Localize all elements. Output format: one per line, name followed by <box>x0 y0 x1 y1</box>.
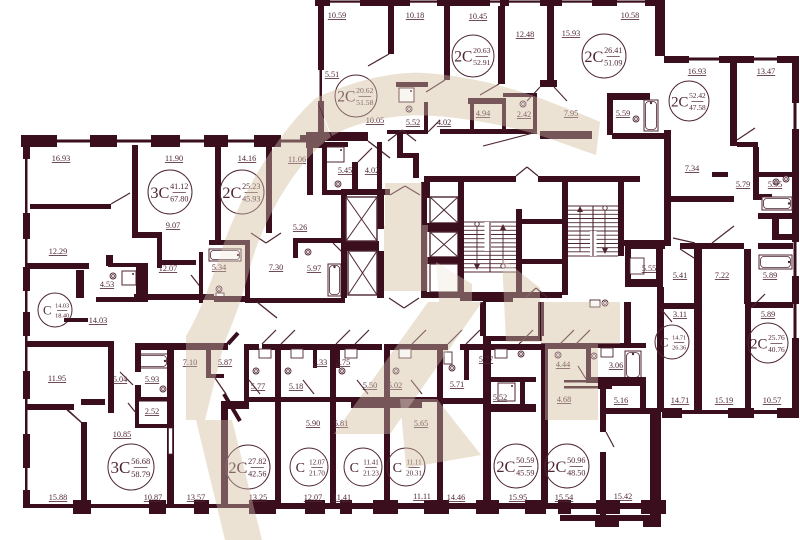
svg-text:2.75: 2.75 <box>336 358 350 367</box>
svg-text:11.41: 11.41 <box>333 493 351 502</box>
svg-text:10.59: 10.59 <box>328 11 346 20</box>
svg-text:10.45: 10.45 <box>469 12 487 21</box>
svg-text:42.56: 42.56 <box>248 470 266 479</box>
svg-text:7.30: 7.30 <box>269 263 283 272</box>
svg-text:48.50: 48.50 <box>567 469 585 478</box>
svg-text:5.71: 5.71 <box>450 380 464 389</box>
svg-text:50.96: 50.96 <box>567 456 585 465</box>
svg-text:45.59: 45.59 <box>516 469 534 478</box>
svg-text:10.58: 10.58 <box>621 11 639 20</box>
svg-text:11.11: 11.11 <box>413 492 431 501</box>
svg-text:21.70: 21.70 <box>309 469 325 477</box>
svg-text:4.02: 4.02 <box>365 166 379 175</box>
svg-text:15.93: 15.93 <box>562 29 580 38</box>
svg-text:4.02: 4.02 <box>437 118 451 127</box>
svg-text:56.68: 56.68 <box>131 456 150 466</box>
svg-text:11.90: 11.90 <box>165 154 183 163</box>
svg-text:15.95: 15.95 <box>509 493 527 502</box>
svg-text:5.52: 5.52 <box>406 118 420 127</box>
svg-text:5.45: 5.45 <box>338 166 352 175</box>
svg-text:52.42: 52.42 <box>689 91 706 100</box>
svg-text:15.42: 15.42 <box>614 492 632 501</box>
svg-text:2С: 2С <box>454 49 472 66</box>
svg-text:12.07: 12.07 <box>309 458 325 466</box>
svg-text:3С: 3С <box>150 183 169 202</box>
svg-text:14.71: 14.71 <box>672 335 686 342</box>
svg-text:С: С <box>393 460 402 476</box>
svg-text:12.29: 12.29 <box>49 247 67 256</box>
svg-text:51.09: 51.09 <box>604 59 622 68</box>
svg-text:14.46: 14.46 <box>447 493 465 502</box>
svg-text:52.91: 52.91 <box>473 58 491 67</box>
svg-text:2С: 2С <box>222 183 241 202</box>
svg-text:5.18: 5.18 <box>289 382 303 391</box>
svg-text:5.95: 5.95 <box>768 180 782 189</box>
svg-text:2С: 2С <box>584 47 603 66</box>
svg-text:5.77: 5.77 <box>251 382 265 391</box>
svg-text:2.33: 2.33 <box>313 358 327 367</box>
svg-text:41.12: 41.12 <box>170 182 188 191</box>
svg-text:10.18: 10.18 <box>406 11 424 20</box>
svg-text:С: С <box>296 460 305 476</box>
svg-text:9.07: 9.07 <box>166 221 180 230</box>
svg-text:7.34: 7.34 <box>685 164 699 173</box>
svg-text:5.16: 5.16 <box>614 396 628 405</box>
svg-text:21.23: 21.23 <box>363 469 379 477</box>
svg-text:5.89: 5.89 <box>763 271 777 280</box>
svg-text:14.16: 14.16 <box>238 154 256 163</box>
svg-text:5.55: 5.55 <box>642 264 656 273</box>
svg-text:26.41: 26.41 <box>604 46 622 55</box>
svg-text:2С: 2С <box>547 457 566 476</box>
svg-text:13.47: 13.47 <box>757 67 775 76</box>
svg-text:20.31: 20.31 <box>406 469 422 477</box>
svg-text:14.71: 14.71 <box>671 396 689 405</box>
svg-text:15.19: 15.19 <box>715 396 733 405</box>
svg-text:5.52: 5.52 <box>493 393 507 402</box>
svg-text:3С: 3С <box>110 458 130 477</box>
svg-text:16.93: 16.93 <box>52 154 70 163</box>
svg-text:12.48: 12.48 <box>516 30 534 39</box>
svg-text:5.77: 5.77 <box>479 355 493 364</box>
svg-text:20.63: 20.63 <box>473 46 491 55</box>
svg-text:40.76: 40.76 <box>768 345 785 354</box>
svg-text:5.26: 5.26 <box>293 223 307 232</box>
svg-text:11.95: 11.95 <box>48 374 66 383</box>
svg-text:10.87: 10.87 <box>144 493 162 502</box>
svg-text:10.57: 10.57 <box>763 396 781 405</box>
svg-text:14.03: 14.03 <box>55 303 69 310</box>
svg-text:2С: 2С <box>671 94 688 110</box>
svg-text:14.03: 14.03 <box>89 316 107 325</box>
svg-text:2С: 2С <box>750 336 767 352</box>
svg-text:15.54: 15.54 <box>555 493 573 502</box>
svg-text:5.41: 5.41 <box>673 271 687 280</box>
svg-text:2С: 2С <box>496 457 515 476</box>
svg-text:5.93: 5.93 <box>145 375 159 384</box>
svg-text:67.80: 67.80 <box>170 195 188 204</box>
svg-text:10.85: 10.85 <box>113 430 131 439</box>
svg-text:15.88: 15.88 <box>49 493 67 502</box>
svg-text:3.06: 3.06 <box>609 361 623 370</box>
svg-text:26.36: 26.36 <box>672 344 686 351</box>
svg-text:7.22: 7.22 <box>715 271 729 280</box>
svg-text:5.90: 5.90 <box>306 419 320 428</box>
svg-text:25.76: 25.76 <box>768 333 785 342</box>
svg-text:12.07: 12.07 <box>159 264 177 273</box>
svg-text:47.58: 47.58 <box>689 103 706 112</box>
svg-text:5.89: 5.89 <box>761 310 775 319</box>
svg-text:11.41: 11.41 <box>363 458 379 466</box>
svg-text:5.04: 5.04 <box>113 375 127 384</box>
svg-text:5.97: 5.97 <box>307 264 321 273</box>
svg-text:3.11: 3.11 <box>673 310 687 319</box>
svg-text:2.52: 2.52 <box>145 407 159 416</box>
svg-text:4.53: 4.53 <box>100 280 114 289</box>
svg-text:12.07: 12.07 <box>304 493 322 502</box>
svg-text:27.82: 27.82 <box>248 457 266 466</box>
svg-text:5.59: 5.59 <box>616 109 630 118</box>
svg-text:58.79: 58.79 <box>131 469 150 479</box>
svg-text:16.93: 16.93 <box>688 67 706 76</box>
svg-text:5.79: 5.79 <box>736 180 750 189</box>
svg-text:5.51: 5.51 <box>325 70 339 79</box>
svg-text:13.57: 13.57 <box>187 493 205 502</box>
svg-text:50.59: 50.59 <box>516 456 534 465</box>
svg-text:С: С <box>43 304 51 318</box>
svg-text:С: С <box>350 460 359 476</box>
svg-text:С: С <box>660 336 668 350</box>
